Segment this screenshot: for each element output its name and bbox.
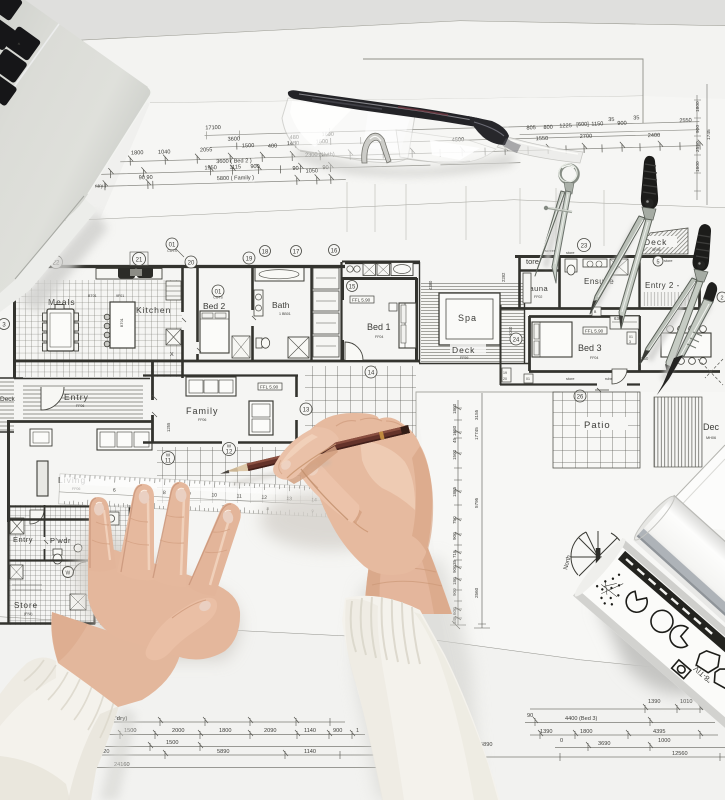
svg-text:COTS: COTS xyxy=(167,249,177,253)
svg-text:5890: 5890 xyxy=(217,749,229,755)
svg-text:1800: 1800 xyxy=(131,150,144,156)
svg-text:10: 10 xyxy=(211,492,217,498)
svg-text:900: 900 xyxy=(452,565,457,573)
svg-text:18: 18 xyxy=(262,250,269,256)
svg-text:16: 16 xyxy=(331,249,338,255)
svg-text:4380: 4380 xyxy=(428,280,433,290)
svg-text:1150: 1150 xyxy=(591,121,603,127)
svg-text:2400: 2400 xyxy=(648,133,661,139)
svg-text:8: 8 xyxy=(163,490,166,496)
svg-text:1140: 1140 xyxy=(304,749,316,755)
svg-text:Deck: Deck xyxy=(0,396,16,403)
svg-text:X: X xyxy=(170,352,174,358)
svg-text:24: 24 xyxy=(513,338,520,344)
svg-text:P'wdr: P'wdr xyxy=(50,536,71,545)
svg-text:FF04: FF04 xyxy=(375,335,383,339)
svg-text:1500: 1500 xyxy=(452,449,457,460)
svg-text:rube: rube xyxy=(605,377,613,381)
svg-text:23: 23 xyxy=(581,244,588,250)
svg-text:1500: 1500 xyxy=(166,740,178,746)
svg-text:1140: 1140 xyxy=(304,728,316,734)
svg-text:15: 15 xyxy=(349,285,356,291)
svg-text:1950: 1950 xyxy=(204,165,217,171)
svg-text:1800: 1800 xyxy=(580,729,592,735)
svg-text:2090: 2090 xyxy=(264,728,276,734)
svg-text:[600]: [600] xyxy=(576,122,589,128)
svg-text:(P/U): (P/U) xyxy=(24,612,32,616)
svg-text:2282: 2282 xyxy=(501,272,506,282)
svg-text:Family: Family xyxy=(186,406,219,416)
svg-text:ntry ): ntry ) xyxy=(95,183,107,189)
svg-text:1800: 1800 xyxy=(219,728,231,734)
svg-text:FF99: FF99 xyxy=(460,356,468,360)
svg-text:FF02: FF02 xyxy=(534,295,542,299)
svg-text:FFL 5.90: FFL 5.90 xyxy=(352,298,371,303)
svg-text:90: 90 xyxy=(527,713,533,719)
svg-text:2560: 2560 xyxy=(474,587,479,598)
svg-text:1390: 1390 xyxy=(648,699,660,705)
svg-text:4400 (Bed 3): 4400 (Bed 3) xyxy=(565,716,597,722)
svg-text:900: 900 xyxy=(452,532,457,540)
svg-text:Bath: Bath xyxy=(272,300,290,310)
svg-text:FF06: FF06 xyxy=(76,404,84,408)
svg-text:01: 01 xyxy=(169,243,176,249)
svg-text:COTS: COTS xyxy=(213,296,223,300)
svg-text:1: 1 xyxy=(356,728,359,734)
svg-text:SF06: SF06 xyxy=(652,248,661,252)
svg-text:Deck: Deck xyxy=(644,237,667,247)
svg-text:1800: 1800 xyxy=(695,101,701,112)
svg-text:180: 180 xyxy=(452,577,457,585)
svg-text:2055: 2055 xyxy=(200,147,213,153)
svg-text:19: 19 xyxy=(503,371,507,375)
svg-text:1550: 1550 xyxy=(536,136,549,142)
svg-text:5: 5 xyxy=(656,260,659,266)
svg-text:5800 ( Family ): 5800 ( Family ) xyxy=(217,175,255,182)
svg-text:FF06: FF06 xyxy=(198,418,206,422)
svg-text:9F01: 9F01 xyxy=(116,294,124,298)
svg-text:3155: 3155 xyxy=(474,409,479,420)
svg-text:17745: 17745 xyxy=(474,427,479,440)
svg-text:17: 17 xyxy=(293,250,300,256)
svg-text:1680: 1680 xyxy=(452,425,457,436)
svg-text:1050: 1050 xyxy=(305,168,318,174)
svg-text:900: 900 xyxy=(617,121,627,127)
svg-text:90 90: 90 90 xyxy=(139,175,153,181)
svg-text:1390: 1390 xyxy=(540,729,552,735)
svg-text:store: store xyxy=(664,259,672,263)
svg-text:2700: 2700 xyxy=(580,134,593,140)
svg-text:12560: 12560 xyxy=(672,751,688,757)
svg-text:4395: 4395 xyxy=(653,729,665,735)
svg-text:01: 01 xyxy=(526,377,530,381)
svg-text:5795: 5795 xyxy=(474,497,479,508)
svg-text:2550: 2550 xyxy=(695,141,701,152)
svg-text:Bed 1: Bed 1 xyxy=(367,322,391,332)
svg-text:1800: 1800 xyxy=(452,403,457,414)
svg-text:MH06: MH06 xyxy=(706,436,716,440)
svg-text:14: 14 xyxy=(368,371,375,377)
svg-text:21: 21 xyxy=(136,258,143,264)
svg-text:1225: 1225 xyxy=(559,123,572,129)
svg-text:BT01: BT01 xyxy=(88,294,97,298)
svg-text:FF04: FF04 xyxy=(590,356,598,360)
svg-text:45: 45 xyxy=(452,437,457,443)
svg-text:1255: 1255 xyxy=(166,422,171,432)
svg-text:20: 20 xyxy=(503,377,507,381)
svg-text:900: 900 xyxy=(333,728,342,734)
svg-text:19: 19 xyxy=(246,257,253,263)
svg-text:Bed 3: Bed 3 xyxy=(578,343,602,353)
svg-text:17100: 17100 xyxy=(205,125,221,131)
svg-text:11: 11 xyxy=(236,494,242,500)
svg-text:90: 90 xyxy=(292,166,298,172)
svg-text:400: 400 xyxy=(268,143,278,149)
svg-text:1115: 1115 xyxy=(229,164,241,170)
svg-text:1500: 1500 xyxy=(242,143,255,149)
svg-text:6: 6 xyxy=(113,488,116,494)
svg-text:1600: 1600 xyxy=(695,161,701,172)
svg-text:1010: 1010 xyxy=(680,699,692,705)
svg-text:3600: 3600 xyxy=(228,136,241,142)
svg-text:12: 12 xyxy=(261,495,267,501)
svg-text:805: 805 xyxy=(526,125,536,131)
svg-text:900: 900 xyxy=(695,125,701,133)
svg-text:900: 900 xyxy=(250,164,260,170)
svg-text:Spa: Spa xyxy=(458,313,477,323)
svg-text:FFL 5.90: FFL 5.90 xyxy=(585,329,604,334)
svg-text:1 BB01: 1 BB01 xyxy=(279,312,291,316)
svg-text:0: 0 xyxy=(560,738,563,744)
svg-text:1000: 1000 xyxy=(658,738,670,744)
svg-text:BT01: BT01 xyxy=(120,318,124,327)
svg-text:tore: tore xyxy=(526,257,539,266)
svg-text:FFL 5.90: FFL 5.90 xyxy=(260,385,279,390)
svg-text:Store: Store xyxy=(14,601,38,610)
svg-text:Deck: Deck xyxy=(452,345,475,355)
svg-text:35: 35 xyxy=(608,117,614,123)
svg-text:2: 2 xyxy=(720,296,723,302)
svg-text:01: 01 xyxy=(629,335,633,339)
svg-text:800: 800 xyxy=(543,125,553,131)
svg-text:715: 715 xyxy=(452,550,457,558)
svg-text:Entry: Entry xyxy=(13,535,33,544)
svg-text:1040: 1040 xyxy=(158,149,171,155)
svg-text:20: 20 xyxy=(188,261,195,267)
svg-text:13: 13 xyxy=(303,408,310,414)
svg-text:Kitchen: Kitchen xyxy=(136,305,171,315)
svg-text:11: 11 xyxy=(165,459,172,465)
svg-text:Patio: Patio xyxy=(584,420,611,431)
svg-text:Entry 2 -: Entry 2 - xyxy=(645,281,680,290)
svg-text:Entry: Entry xyxy=(64,392,89,402)
svg-text:750: 750 xyxy=(452,516,457,524)
svg-text:Dec: Dec xyxy=(703,422,720,432)
svg-text:1885: 1885 xyxy=(452,486,457,497)
svg-text:2000: 2000 xyxy=(172,728,184,734)
svg-text:1745: 1745 xyxy=(706,129,712,140)
svg-text:Bed 2: Bed 2 xyxy=(203,301,225,311)
svg-text:store: store xyxy=(566,377,574,381)
svg-text:3690: 3690 xyxy=(598,741,610,747)
svg-text:2550: 2550 xyxy=(679,118,692,124)
svg-text:store: store xyxy=(566,251,574,255)
svg-text:12: 12 xyxy=(226,450,233,456)
svg-text:35: 35 xyxy=(452,559,457,565)
svg-text:3: 3 xyxy=(629,340,631,344)
svg-text:W: W xyxy=(66,571,71,577)
svg-text:35: 35 xyxy=(633,115,639,121)
